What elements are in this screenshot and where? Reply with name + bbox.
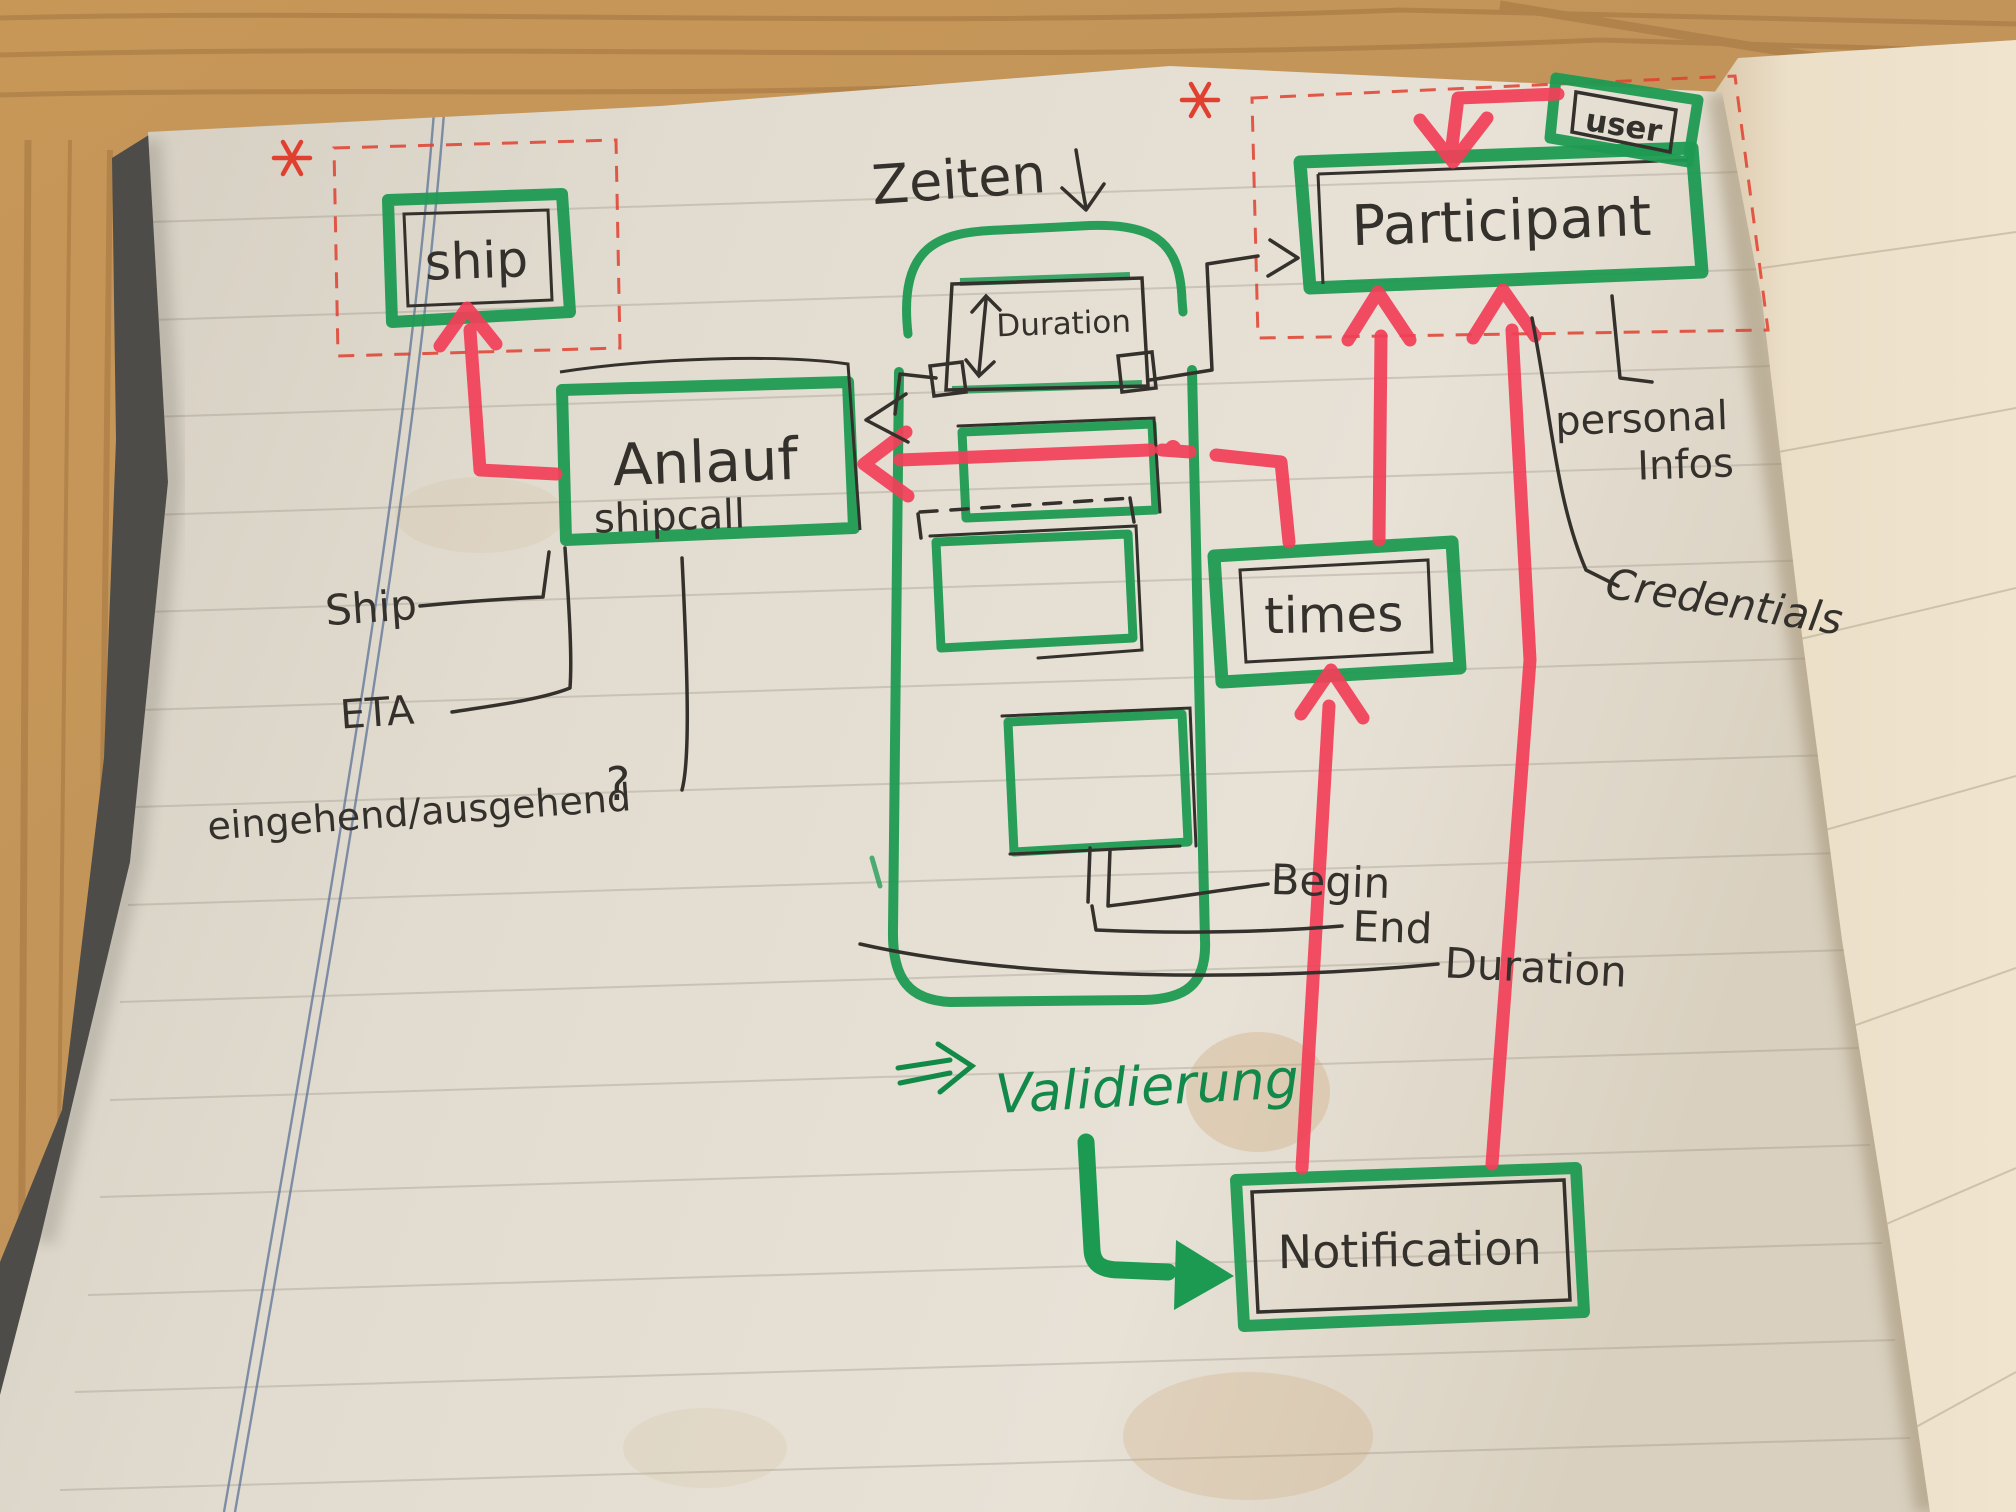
eta-field-label: ETA xyxy=(339,687,417,738)
begin-field-label: Begin xyxy=(1270,855,1391,908)
notification-label: Notification xyxy=(1277,1221,1542,1280)
anlauf-label: Anlauf xyxy=(612,425,801,499)
diagram-canvas: Duration ship Anlauf shipcall Participan… xyxy=(0,0,2016,1512)
end-field-label: End xyxy=(1352,902,1433,954)
shipcall-label: shipcall xyxy=(593,491,746,542)
participant-label: Participant xyxy=(1350,184,1652,259)
ship-label: ship xyxy=(424,230,529,292)
times-label: times xyxy=(1264,585,1404,645)
direction-question-mark: ? xyxy=(606,757,630,811)
duration-box-label: Duration xyxy=(996,304,1132,345)
ship-field-label: Ship xyxy=(324,580,419,635)
zeiten-label: Zeiten xyxy=(870,142,1048,217)
personal-label-line2: Infos xyxy=(1636,440,1734,489)
duration-field-label: Duration xyxy=(1443,938,1628,996)
notebook-photo: Duration ship Anlauf shipcall Participan… xyxy=(0,0,2016,1512)
personal-label-line1: personal xyxy=(1554,393,1728,445)
